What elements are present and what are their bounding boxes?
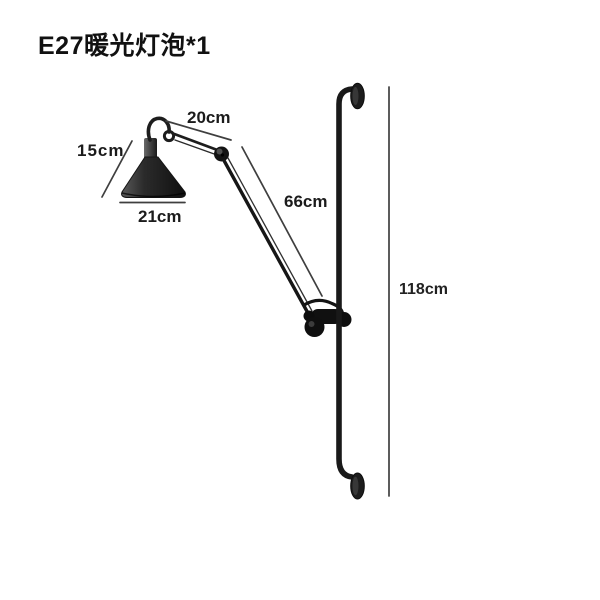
long-arm bbox=[224, 158, 312, 315]
dimension-label-long-arm: 66cm bbox=[284, 192, 327, 212]
dimension-label-shade-diameter: 21cm bbox=[138, 207, 181, 227]
dimension-label-pole-height: 118cm bbox=[399, 281, 448, 299]
dimension-label-upper-arm: 20cm bbox=[187, 108, 230, 128]
wall-pole bbox=[339, 83, 364, 499]
product-dimension-image: E27暖光灯泡*1 bbox=[0, 0, 600, 600]
lamp-diagram bbox=[0, 0, 600, 600]
elbow-joint bbox=[214, 147, 229, 162]
clamp-knob-left bbox=[305, 317, 325, 337]
lamp-shade bbox=[122, 157, 186, 198]
pole-clamp bbox=[304, 300, 352, 337]
dimension-label-shade-height: 15cm bbox=[77, 141, 124, 161]
dimension-line-66cm bbox=[242, 147, 322, 296]
pole-rail bbox=[339, 89, 352, 477]
lamp-head bbox=[122, 118, 186, 197]
upper-arm bbox=[173, 134, 217, 156]
